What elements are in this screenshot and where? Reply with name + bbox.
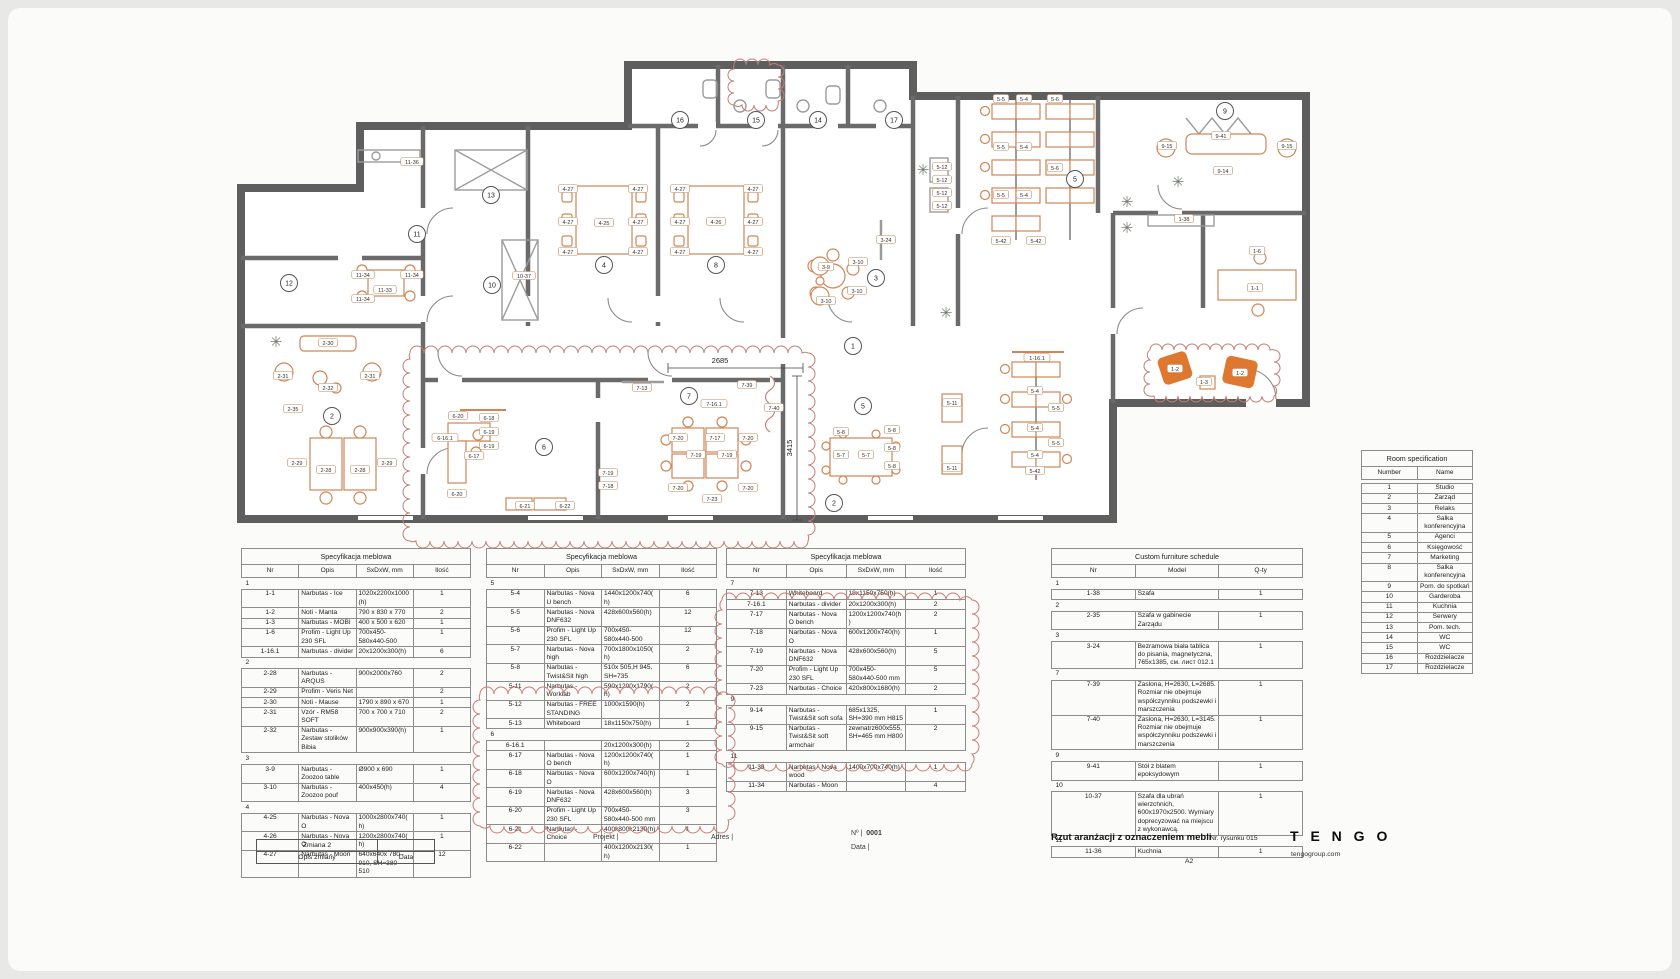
svg-text:5-4: 5-4 bbox=[1020, 193, 1028, 199]
drawing-sheet-stage: Specyfikacja meblowaNrOpisSxDxW, mmIlość… bbox=[0, 0, 1680, 979]
svg-text:4-27: 4-27 bbox=[674, 187, 685, 193]
svg-text:5-4: 5-4 bbox=[1031, 389, 1039, 395]
custom-furniture-table: Custom furniture scheduleNrModelQ-ty11-3… bbox=[1051, 548, 1303, 858]
svg-text:5-5: 5-5 bbox=[1052, 441, 1060, 447]
svg-text:✳: ✳ bbox=[1121, 220, 1134, 237]
svg-text:4-27: 4-27 bbox=[562, 220, 573, 226]
svg-text:5-11: 5-11 bbox=[947, 401, 958, 407]
furniture bbox=[275, 104, 1296, 510]
svg-text:4-27: 4-27 bbox=[747, 250, 758, 256]
tengo-website: tengogroup.com bbox=[1291, 851, 1340, 858]
svg-text:2-31: 2-31 bbox=[364, 374, 375, 380]
svg-text:5-8: 5-8 bbox=[888, 428, 896, 434]
date-label: Data | bbox=[851, 844, 870, 851]
svg-text:2-30: 2-30 bbox=[322, 341, 333, 347]
revision-desc-label: Opis zmiany bbox=[257, 852, 378, 864]
svg-text:7-20: 7-20 bbox=[672, 436, 683, 442]
svg-text:4-27: 4-27 bbox=[562, 187, 573, 193]
plan-labels: 16151417911131210483512675211-3611-3411-… bbox=[274, 95, 1297, 521]
svg-text:9-15: 9-15 bbox=[1281, 144, 1292, 150]
svg-text:7-18: 7-18 bbox=[602, 484, 613, 490]
svg-text:12: 12 bbox=[285, 281, 293, 288]
plants: ✳✳✳ ✳✳✳ bbox=[270, 162, 1185, 351]
wall-openings bbox=[338, 122, 1276, 520]
drawing-title: Rzut aranżacji z oznaczeniem mebli bbox=[1051, 832, 1212, 843]
svg-text:5-8: 5-8 bbox=[837, 430, 845, 436]
number-value: 0001 bbox=[866, 830, 882, 837]
svg-text:7-19: 7-19 bbox=[690, 453, 701, 459]
svg-text:5-11: 5-11 bbox=[947, 466, 958, 472]
svg-text:1-1: 1-1 bbox=[1251, 286, 1259, 292]
svg-text:4-27: 4-27 bbox=[632, 220, 643, 226]
svg-text:2685: 2685 bbox=[712, 356, 729, 365]
svg-text:4-26: 4-26 bbox=[710, 220, 721, 226]
svg-text:4-27: 4-27 bbox=[747, 220, 758, 226]
svg-text:11-34: 11-34 bbox=[405, 273, 419, 279]
svg-text:5-5: 5-5 bbox=[997, 97, 1005, 103]
svg-text:7: 7 bbox=[687, 394, 691, 401]
svg-text:5-6: 5-6 bbox=[1051, 97, 1059, 103]
exterior-walls bbox=[241, 65, 1306, 519]
svg-text:5: 5 bbox=[1073, 177, 1077, 184]
svg-text:5-5: 5-5 bbox=[997, 193, 1005, 199]
svg-text:5-5: 5-5 bbox=[997, 145, 1005, 151]
svg-text:8: 8 bbox=[714, 263, 718, 270]
svg-text:6-19: 6-19 bbox=[483, 444, 494, 450]
svg-text:6-20: 6-20 bbox=[452, 414, 463, 420]
svg-text:11-33: 11-33 bbox=[378, 288, 392, 294]
drawing-sheet: Specyfikacja meblowaNrOpisSxDxW, mmIlość… bbox=[8, 8, 1672, 971]
svg-text:✳: ✳ bbox=[1172, 174, 1185, 191]
svg-text:7-23: 7-23 bbox=[706, 497, 717, 503]
svg-text:14: 14 bbox=[814, 118, 822, 125]
accent-chairs bbox=[1156, 350, 1258, 389]
fixtures bbox=[358, 80, 1251, 480]
sheet-format: A2 bbox=[1185, 858, 1193, 865]
svg-text:2-28: 2-28 bbox=[354, 468, 365, 474]
svg-text:4-27: 4-27 bbox=[674, 250, 685, 256]
svg-text:5-8: 5-8 bbox=[888, 464, 896, 470]
svg-text:5-8: 5-8 bbox=[888, 446, 896, 452]
svg-text:3: 3 bbox=[874, 276, 878, 283]
svg-text:✳: ✳ bbox=[1121, 194, 1134, 211]
svg-text:7-19: 7-19 bbox=[721, 453, 732, 459]
svg-text:7-17: 7-17 bbox=[709, 436, 720, 442]
svg-text:5-12: 5-12 bbox=[936, 204, 947, 210]
svg-text:7-39: 7-39 bbox=[741, 383, 752, 389]
svg-text:4-27: 4-27 bbox=[747, 187, 758, 193]
svg-text:5-5: 5-5 bbox=[1052, 406, 1060, 412]
tengo-logo: T E N G O bbox=[1290, 828, 1391, 844]
svg-text:7-20: 7-20 bbox=[742, 436, 753, 442]
svg-text:5-4: 5-4 bbox=[1031, 453, 1039, 459]
svg-text:1-3: 1-3 bbox=[1200, 380, 1208, 386]
svg-text:3-10: 3-10 bbox=[851, 289, 862, 295]
number-label: Nº | 0001 bbox=[851, 830, 882, 837]
svg-text:5-12: 5-12 bbox=[936, 165, 947, 171]
svg-text:5: 5 bbox=[861, 404, 865, 411]
svg-text:4-27: 4-27 bbox=[632, 187, 643, 193]
spec-table-2: Specyfikacja meblowaNrOpisSxDxW, mmIlość… bbox=[486, 548, 717, 862]
svg-text:✳: ✳ bbox=[940, 305, 953, 322]
svg-text:6-16.1: 6-16.1 bbox=[437, 436, 453, 442]
svg-text:11-36: 11-36 bbox=[405, 160, 419, 166]
revision-block: Zmiana 2 Opis zmianyData bbox=[256, 839, 432, 864]
door-swings bbox=[427, 130, 1276, 474]
svg-text:✳: ✳ bbox=[270, 334, 283, 351]
room-specification-table: Room specificationNumberName1Studio2Zarz… bbox=[1361, 450, 1473, 674]
address-label: Adres | bbox=[711, 834, 733, 841]
svg-text:7-16.1: 7-16.1 bbox=[706, 402, 722, 408]
revision-change-label: Zmiana 2 bbox=[257, 840, 378, 852]
svg-text:16: 16 bbox=[676, 118, 684, 125]
svg-text:4: 4 bbox=[602, 263, 606, 270]
svg-text:6-19: 6-19 bbox=[483, 430, 494, 436]
svg-text:6-17: 6-17 bbox=[468, 454, 479, 460]
revision-change-value bbox=[378, 840, 435, 852]
svg-text:5-7: 5-7 bbox=[837, 453, 845, 459]
svg-text:5-4: 5-4 bbox=[1020, 97, 1028, 103]
svg-text:9-41: 9-41 bbox=[1215, 134, 1226, 140]
svg-text:2-35: 2-35 bbox=[287, 407, 298, 413]
svg-text:4-27: 4-27 bbox=[632, 250, 643, 256]
svg-text:4-27: 4-27 bbox=[674, 220, 685, 226]
svg-text:7-20: 7-20 bbox=[672, 486, 683, 492]
svg-text:17: 17 bbox=[890, 118, 898, 125]
project-label: Projekt | bbox=[593, 834, 619, 841]
svg-text:3-10: 3-10 bbox=[852, 260, 863, 266]
svg-text:4-27: 4-27 bbox=[562, 250, 573, 256]
svg-text:1: 1 bbox=[851, 344, 855, 351]
svg-text:13: 13 bbox=[487, 193, 495, 200]
svg-text:1-16.1: 1-16.1 bbox=[1029, 356, 1045, 362]
svg-text:3-10: 3-10 bbox=[820, 299, 831, 305]
svg-text:9-15: 9-15 bbox=[1161, 144, 1172, 150]
interior-walls bbox=[241, 65, 1306, 519]
svg-text:5-12: 5-12 bbox=[936, 178, 947, 184]
svg-text:4-25: 4-25 bbox=[598, 221, 609, 227]
svg-text:6-22: 6-22 bbox=[559, 504, 570, 510]
svg-text:2: 2 bbox=[832, 501, 836, 508]
svg-text:1-6: 1-6 bbox=[1253, 249, 1261, 255]
svg-text:3-24: 3-24 bbox=[880, 238, 891, 244]
svg-text:6-20: 6-20 bbox=[451, 492, 462, 498]
svg-text:5-42: 5-42 bbox=[995, 239, 1006, 245]
building-footprint bbox=[241, 65, 1306, 519]
svg-text:6: 6 bbox=[542, 445, 546, 452]
svg-text:7-19: 7-19 bbox=[602, 471, 613, 477]
svg-text:11-34: 11-34 bbox=[356, 273, 370, 279]
svg-text:2-31: 2-31 bbox=[277, 374, 288, 380]
spec-table-1: Specyfikacja meblowaNrOpisSxDxW, mmIlość… bbox=[241, 548, 471, 878]
svg-text:2: 2 bbox=[330, 414, 334, 421]
svg-text:9: 9 bbox=[1223, 109, 1227, 116]
svg-text:10-37: 10-37 bbox=[517, 274, 531, 280]
svg-text:1-2: 1-2 bbox=[1171, 367, 1179, 373]
svg-text:7-13: 7-13 bbox=[636, 386, 647, 392]
svg-text:6-21: 6-21 bbox=[519, 504, 530, 510]
svg-text:7-20: 7-20 bbox=[742, 486, 753, 492]
svg-text:11: 11 bbox=[413, 232, 420, 239]
svg-text:6-18: 6-18 bbox=[483, 416, 494, 422]
revision-date-label: Data bbox=[378, 852, 435, 864]
svg-text:2-28: 2-28 bbox=[320, 468, 331, 474]
svg-text:3415: 3415 bbox=[785, 440, 794, 457]
svg-text:7-40: 7-40 bbox=[768, 406, 779, 412]
svg-text:5-42: 5-42 bbox=[1029, 469, 1040, 475]
svg-text:5-7: 5-7 bbox=[862, 453, 870, 459]
spec-table-3: Specyfikacja meblowaNrOpisSxDxW, mmIlość… bbox=[726, 548, 966, 792]
svg-text:5-4: 5-4 bbox=[1020, 145, 1028, 151]
svg-text:10: 10 bbox=[488, 283, 496, 290]
svg-text:2-29: 2-29 bbox=[381, 461, 392, 467]
svg-text:✳: ✳ bbox=[917, 162, 930, 179]
svg-text:11-34: 11-34 bbox=[356, 297, 370, 303]
drawing-number: Nr. rysunku 015 bbox=[1210, 835, 1258, 842]
svg-text:1-2: 1-2 bbox=[1236, 371, 1244, 377]
svg-text:9-14: 9-14 bbox=[1217, 169, 1228, 175]
svg-text:2-32: 2-32 bbox=[322, 386, 333, 392]
svg-text:5-42: 5-42 bbox=[1030, 239, 1041, 245]
svg-text:5-4: 5-4 bbox=[1031, 426, 1039, 432]
svg-text:3-9: 3-9 bbox=[822, 265, 830, 271]
svg-text:2-29: 2-29 bbox=[291, 461, 302, 467]
svg-text:1-38: 1-38 bbox=[1178, 217, 1189, 223]
svg-text:5-6: 5-6 bbox=[1051, 166, 1059, 172]
svg-text:5-12: 5-12 bbox=[936, 191, 947, 197]
svg-text:15: 15 bbox=[752, 118, 760, 125]
